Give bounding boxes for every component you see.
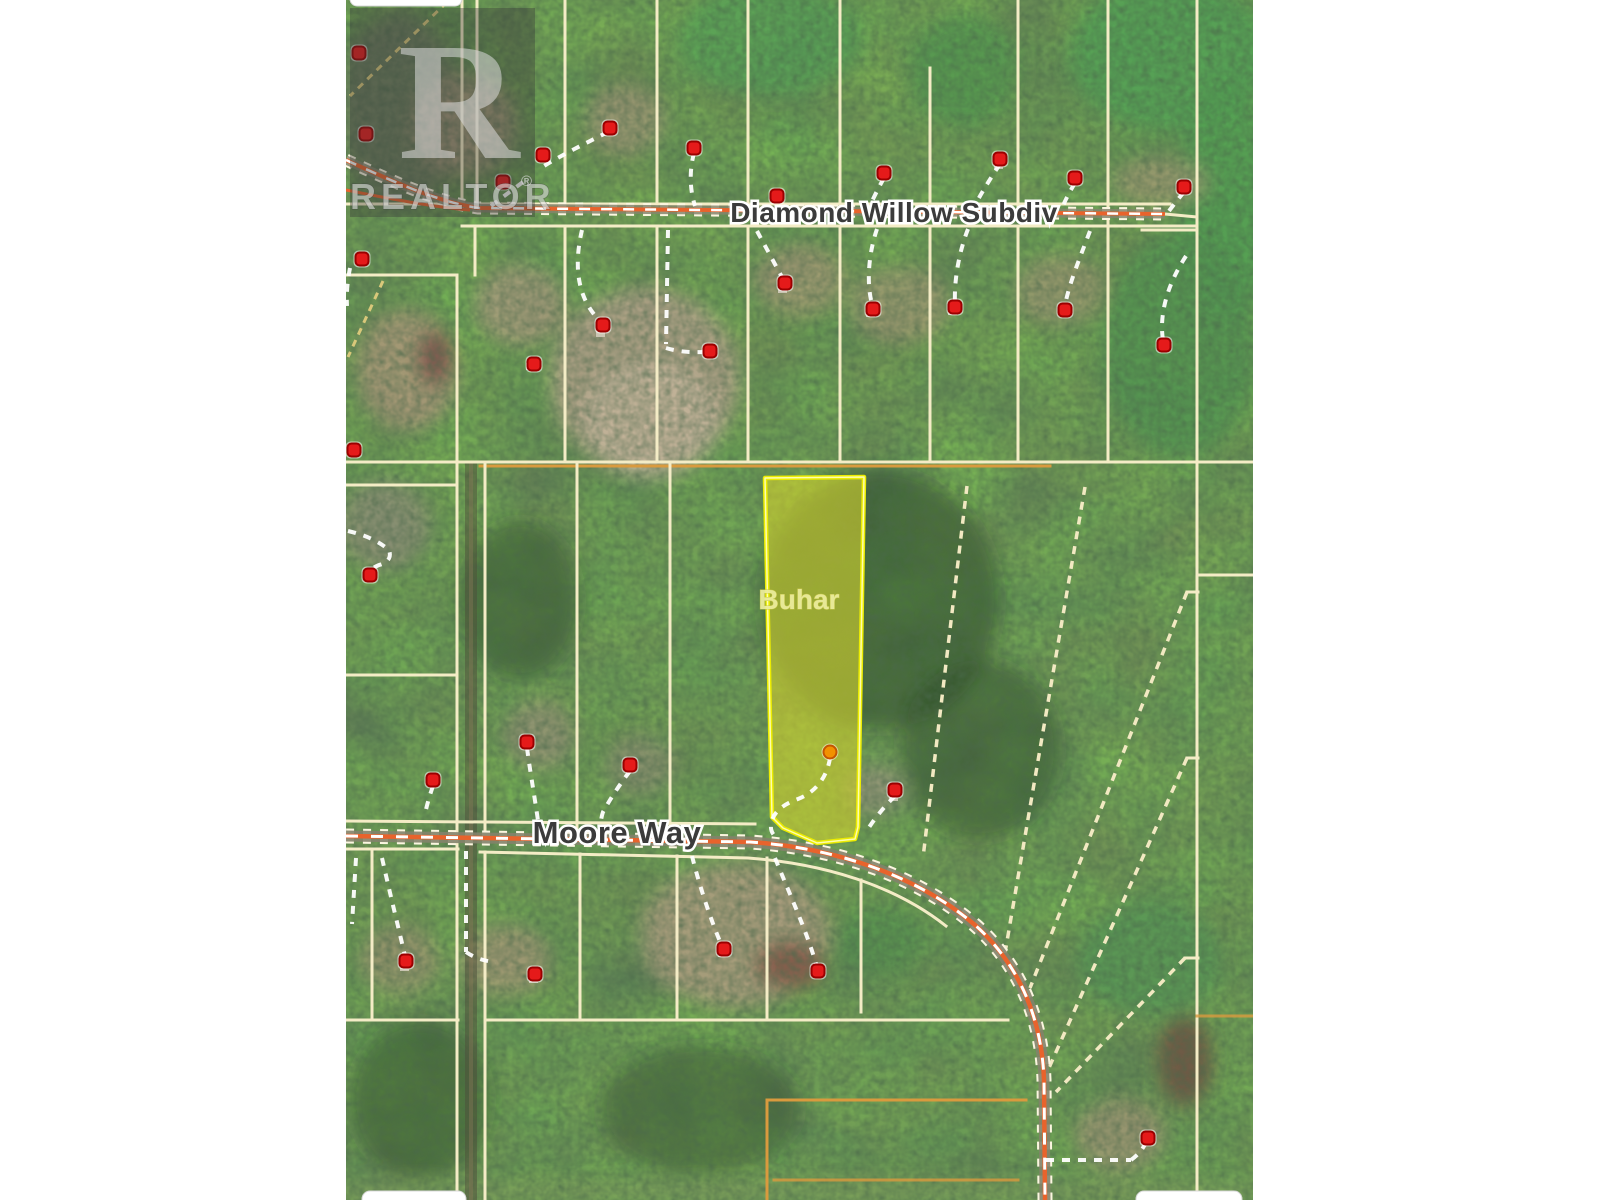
property-marker[interactable] [356,253,369,266]
property-marker[interactable] [364,569,377,582]
property-marker[interactable] [949,301,962,314]
property-marker[interactable] [878,167,891,180]
property-marker[interactable] [1069,172,1082,185]
map-canvas[interactable]: Buhar Diamond Willow Subdiv Moore Way R … [0,0,1600,1200]
property-marker[interactable] [1059,304,1072,317]
property-marker[interactable] [1158,339,1171,352]
property-marker[interactable] [529,968,542,981]
property-marker[interactable] [537,149,550,162]
map-screenshot: Buhar Diamond Willow Subdiv Moore Way R … [0,0,1600,1200]
property-marker[interactable] [867,303,880,316]
property-marker[interactable] [688,142,701,155]
property-marker[interactable] [597,319,610,332]
property-marker[interactable] [400,955,413,968]
property-marker[interactable] [348,444,361,457]
property-marker[interactable] [624,759,637,772]
property-marker[interactable] [889,784,902,797]
property-marker[interactable] [604,122,617,135]
road-label-moore-way: Moore Way [533,815,702,850]
property-marker[interactable] [1142,1132,1155,1145]
bottom-right-tab[interactable] [1136,1191,1242,1200]
road-label-diamond-willow-subdiv: Diamond Willow Subdiv [730,197,1058,228]
realtor-r-icon: R [398,9,521,195]
property-marker[interactable] [1178,181,1191,194]
property-marker[interactable] [718,943,731,956]
property-marker[interactable] [994,153,1007,166]
property-marker[interactable] [812,965,825,978]
realtor-watermark: R REALTOR ® [350,8,556,217]
subject-property-marker[interactable] [824,746,837,759]
property-marker[interactable] [779,277,792,290]
property-marker[interactable] [704,345,717,358]
property-marker[interactable] [521,736,534,749]
property-marker[interactable] [427,774,440,787]
bottom-left-tab[interactable] [362,1191,466,1200]
highlight-parcel-label: Buhar [759,584,840,615]
top-tab[interactable] [350,0,462,6]
registered-trademark-icon: ® [521,173,532,190]
property-marker[interactable] [528,358,541,371]
